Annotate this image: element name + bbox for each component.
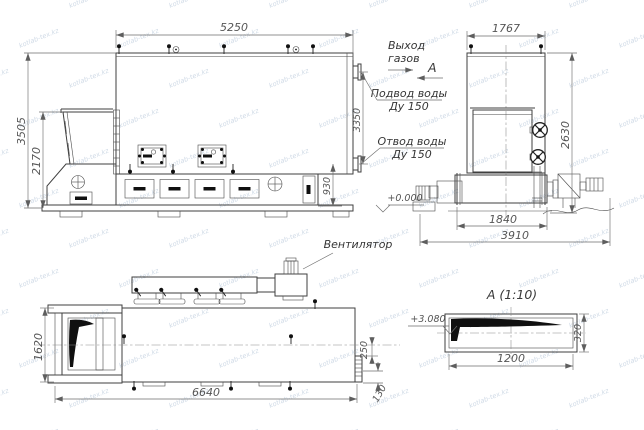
watermark-text: kotlab-tex.kz: [118, 426, 161, 430]
watermark-text: kotlab-tex.kz: [418, 266, 461, 289]
watermark-text: kotlab-tex.kz: [0, 66, 10, 89]
watermark-text: kotlab-tex.kz: [618, 346, 644, 369]
watermark-text: kotlab-tex.kz: [468, 0, 511, 10]
watermark-text: kotlab-tex.kz: [318, 346, 361, 369]
dim-section-height: 320: [573, 324, 584, 342]
section-letter: А: [427, 60, 437, 75]
dim-side-height-total: 3505: [15, 117, 28, 145]
dim-front-overall: 3910: [501, 229, 529, 242]
side-view: 5250 3505 2170 3350 930 +0.000: [15, 21, 424, 217]
watermark-text: kotlab-tex.kz: [0, 0, 10, 10]
watermark-text: kotlab-tex.kz: [318, 26, 361, 49]
watermark-text: kotlab-tex.kz: [318, 266, 361, 289]
watermark-text: kotlab-tex.kz: [218, 426, 261, 430]
watermark-text: kotlab-tex.kz: [218, 106, 261, 129]
watermark-text: kotlab-tex.kz: [18, 26, 61, 49]
watermark-text: kotlab-tex.kz: [618, 26, 644, 49]
watermark-text: kotlab-tex.kz: [618, 106, 644, 129]
watermark-layer: kotlab-tex.kzkotlab-tex.kzkotlab-tex.kzk…: [0, 0, 644, 430]
lifting-eye-icon: [173, 47, 299, 53]
dim-pipe-height: 930: [322, 177, 333, 195]
watermark-text: kotlab-tex.kz: [18, 266, 61, 289]
watermark-text: kotlab-tex.kz: [0, 306, 10, 329]
watermark-text: kotlab-tex.kz: [68, 66, 111, 89]
section-title: А (1:10): [486, 287, 537, 302]
level-3080-text: +3.080: [410, 314, 445, 325]
dim-section-width: 1200: [497, 352, 525, 365]
watermark-text: kotlab-tex.kz: [368, 306, 411, 329]
watermark-text: kotlab-tex.kz: [118, 26, 161, 49]
water-outlet-label-1: Отвод воды: [378, 135, 447, 148]
watermark-text: kotlab-tex.kz: [218, 346, 261, 369]
watermark-text: kotlab-tex.kz: [168, 306, 211, 329]
watermark-text: kotlab-tex.kz: [118, 266, 161, 289]
watermark-text: kotlab-tex.kz: [268, 226, 311, 249]
watermark-text: kotlab-tex.kz: [468, 386, 511, 409]
boiler-drawing-svg: kotlab-tex.kzkotlab-tex.kzkotlab-tex.kzk…: [0, 0, 644, 430]
dim-front-base: 1840: [489, 213, 517, 226]
watermark-text: kotlab-tex.kz: [368, 0, 411, 10]
watermark-text: kotlab-tex.kz: [568, 66, 611, 89]
fan-label: Вентилятор: [324, 238, 393, 251]
dim-plan-offset: 250: [359, 341, 370, 359]
valve-handwheel-icon: [533, 123, 548, 138]
watermark-text: kotlab-tex.kz: [168, 146, 211, 169]
inspection-hatch: [138, 145, 166, 167]
watermark-text: kotlab-tex.kz: [18, 426, 61, 430]
water-outlet-label-2: Ду 150: [391, 148, 432, 161]
watermark-text: kotlab-tex.kz: [268, 0, 311, 10]
watermark-text: kotlab-tex.kz: [18, 186, 61, 209]
dim-front-height: 2630: [559, 121, 572, 149]
duct-section-shape: [451, 318, 562, 341]
level-mark-3080: +3.080: [408, 314, 457, 334]
watermark-text: kotlab-tex.kz: [568, 0, 611, 10]
watermark-text: kotlab-tex.kz: [0, 386, 10, 409]
watermark-text: kotlab-tex.kz: [68, 146, 111, 169]
level-zero-text: +0.000: [387, 193, 422, 204]
watermark-text: kotlab-tex.kz: [68, 386, 111, 409]
dim-pipes-span: 3350: [352, 108, 363, 132]
watermark-text: kotlab-tex.kz: [268, 146, 311, 169]
gas-outlet-label-2: газов: [388, 52, 420, 65]
annotations: Выход газов А Подвод воды Ду 150 Отвод в…: [361, 39, 448, 164]
dim-plan-length: 6640: [192, 386, 220, 399]
watermark-text: kotlab-tex.kz: [418, 346, 461, 369]
level-mark-zero: +0.000: [376, 193, 424, 212]
watermark-text: kotlab-tex.kz: [118, 106, 161, 129]
fan-motor-icon: [284, 258, 298, 274]
watermark-text: kotlab-tex.kz: [218, 266, 261, 289]
watermark-text: kotlab-tex.kz: [618, 266, 644, 289]
chute-opening-shape: [69, 320, 94, 367]
watermark-text: kotlab-tex.kz: [168, 66, 211, 89]
dim-front-width: 1767: [492, 22, 520, 35]
dim-side-width: 5250: [220, 21, 248, 34]
watermark-text: kotlab-tex.kz: [468, 66, 511, 89]
watermark-text: kotlab-tex.kz: [618, 186, 644, 209]
watermark-text: kotlab-tex.kz: [268, 66, 311, 89]
air-duct-manifold: [132, 258, 307, 300]
watermark-text: kotlab-tex.kz: [0, 226, 10, 249]
watermark-text: kotlab-tex.kz: [68, 0, 111, 10]
valve-handwheel-icon: [531, 150, 546, 165]
watermark-text: kotlab-tex.kz: [468, 146, 511, 169]
watermark-text: kotlab-tex.kz: [168, 226, 211, 249]
watermark-text: kotlab-tex.kz: [568, 386, 611, 409]
dim-side-height-hopper: 2170: [30, 147, 43, 175]
watermark-text: kotlab-tex.kz: [418, 186, 461, 209]
watermark-text: kotlab-tex.kz: [618, 426, 644, 430]
dim-plan-depth: 1620: [32, 333, 45, 361]
gas-outlet-label-1: Выход: [388, 39, 425, 52]
watermark-text: kotlab-tex.kz: [318, 426, 361, 430]
branch-ducts: [133, 287, 245, 304]
front-view: 1767 2630 1840 3910: [413, 22, 614, 246]
watermark-text: kotlab-tex.kz: [118, 346, 161, 369]
watermark-text: kotlab-tex.kz: [518, 426, 561, 430]
watermark-text: kotlab-tex.kz: [0, 146, 10, 169]
watermark-text: kotlab-tex.kz: [568, 226, 611, 249]
water-inlet-label-1: Подвод воды: [371, 87, 448, 100]
watermark-text: kotlab-tex.kz: [268, 306, 311, 329]
water-inlet-label-2: Ду 150: [388, 100, 429, 113]
watermark-text: kotlab-tex.kz: [568, 146, 611, 169]
watermark-text: kotlab-tex.kz: [68, 226, 111, 249]
watermark-text: kotlab-tex.kz: [168, 0, 211, 10]
technical-drawing-canvas: kotlab-tex.kzkotlab-tex.kzkotlab-tex.kzk…: [0, 0, 644, 430]
watermark-text: kotlab-tex.kz: [418, 426, 461, 430]
